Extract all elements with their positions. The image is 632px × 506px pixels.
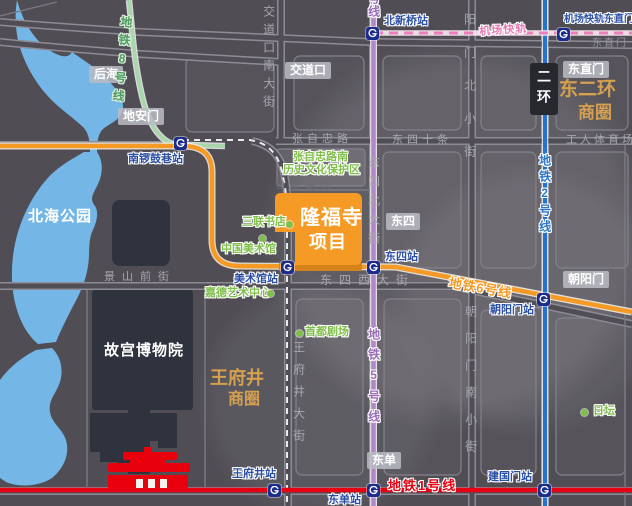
street-dongsi-xidajie: 东四西大街 xyxy=(320,274,415,287)
beihai-park-label: 北海公园 xyxy=(28,209,92,225)
palace-museum-label: 故宫博物院 xyxy=(104,343,184,359)
heritage-zone-line1: 张自忠路南 xyxy=(293,152,348,164)
project-name-line2: 项目 xyxy=(309,233,347,252)
station-wangfujing: 王府井站 xyxy=(232,469,276,481)
station-nanluoguxiang: 南锣鼓巷站 xyxy=(128,154,183,166)
line1-label: 地铁1号线 xyxy=(388,479,457,493)
street-gongren-tiyuchang: 工人体育场 xyxy=(566,135,632,147)
poi-ritan: 日坛 xyxy=(593,406,615,418)
project-name-line1: 隆福寺 xyxy=(300,208,363,229)
line5-label: 地铁5号线 xyxy=(367,328,380,430)
subway-logo-icon-airport-dongzhimen xyxy=(557,28,570,41)
station-dongsi: 东四站 xyxy=(385,252,418,264)
wangfujing-district-line1: 王府井 xyxy=(210,369,264,388)
poi-dot-art-museum xyxy=(259,235,266,242)
subway-logo-icon-nanluoguxiang xyxy=(174,137,187,150)
wangfujing-district-line2: 商圈 xyxy=(228,392,260,409)
street-wangfujing-dajie: 王府井大街 xyxy=(292,341,305,451)
poi-china-art-museum: 中国美术馆 xyxy=(221,244,276,256)
jingshan-block xyxy=(112,200,170,266)
badge-chaoyangmen: 朝阳门 xyxy=(563,271,609,288)
station-chaoyangmen: 朝阳门站 xyxy=(490,305,534,317)
subway-logo-icon-beixinqiao xyxy=(366,27,379,40)
poi-sanlian-bookstore: 三联书店 xyxy=(242,217,286,229)
badge-dongzhimen: 东直门 xyxy=(563,61,609,78)
badge-dongsi: 东四 xyxy=(386,213,420,230)
street-chaoyangmen-nanxiaojie: 朝阳门南小街 xyxy=(464,305,477,467)
poi-capital-theatre: 首都剧场 xyxy=(305,327,349,339)
station-airport-dongzhimen: 机场快轨东直门站 xyxy=(564,15,632,26)
street-dongzhimen: 东直门 xyxy=(592,39,628,50)
subway-logo-icon-jianguomen xyxy=(538,484,551,497)
line5-label-top-partial: 号线 xyxy=(367,0,380,18)
street-jingshan-qianjie: 景山前街 xyxy=(104,272,176,284)
badge-dongdan: 东单 xyxy=(367,452,401,469)
poi-dot-sanlian xyxy=(286,221,293,228)
dongerhuan-district-line1: 东二环 xyxy=(559,80,616,100)
poi-dot-guardian xyxy=(267,290,274,297)
street-jiaodaokou-nandajie: 交道口南大街 xyxy=(262,5,275,113)
longfusi-project-location-map: 北海公园 故宫博物院 隆福寺 项目 东二环 商圈 王府井 商圈 张自忠路南 历史… xyxy=(0,0,632,506)
poi-dot-capital-theatre xyxy=(296,330,303,337)
poi-dot-ritan xyxy=(581,409,588,416)
street-qianliang-hutong: 钱粮胡同 xyxy=(275,182,335,193)
subway-logo-icon-dongdan xyxy=(367,484,380,497)
dongerhuan-district-line2: 商圈 xyxy=(578,104,612,122)
poi-guardian-art-center: 嘉德艺术中心 xyxy=(205,288,271,300)
badge-jiaodaokou: 交道口 xyxy=(285,62,331,79)
subway-logo-icon-wangfujing xyxy=(268,484,281,497)
badge-dianmen: 地安门 xyxy=(118,108,164,125)
station-meishuguan: 美术馆站 xyxy=(234,274,278,286)
subway-logo-icon-meishuguan xyxy=(281,261,294,274)
station-jianguomen: 建国门站 xyxy=(488,472,532,484)
subway-logo-icon-chaoyangmen xyxy=(537,293,550,306)
street-yangmen-beixiaojie: 阳门北小街 xyxy=(463,13,476,178)
station-beixinqiao: 北新桥站 xyxy=(384,16,428,28)
line2-label: 地铁2号线 xyxy=(538,154,551,236)
badge-erhuan: 二环 xyxy=(530,63,558,115)
street-dongsi-beidajie: 东四北大街 xyxy=(367,156,380,251)
street-zhangzizhong-lu: 张自忠路 xyxy=(292,134,352,146)
street-dongsi-shitiao: 东四十条 xyxy=(392,135,452,147)
station-dongdan: 东单站 xyxy=(328,495,361,506)
heritage-zone-line2: 历史文化保护区 xyxy=(283,165,360,177)
